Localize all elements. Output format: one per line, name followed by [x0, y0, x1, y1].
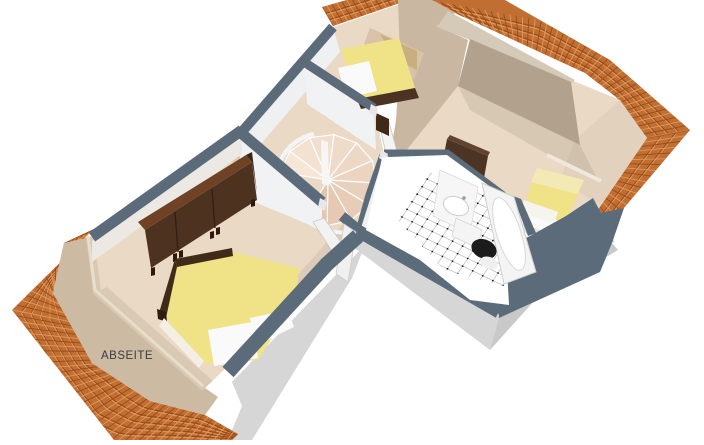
svg-text:ABSEITE: ABSEITE [101, 350, 153, 362]
